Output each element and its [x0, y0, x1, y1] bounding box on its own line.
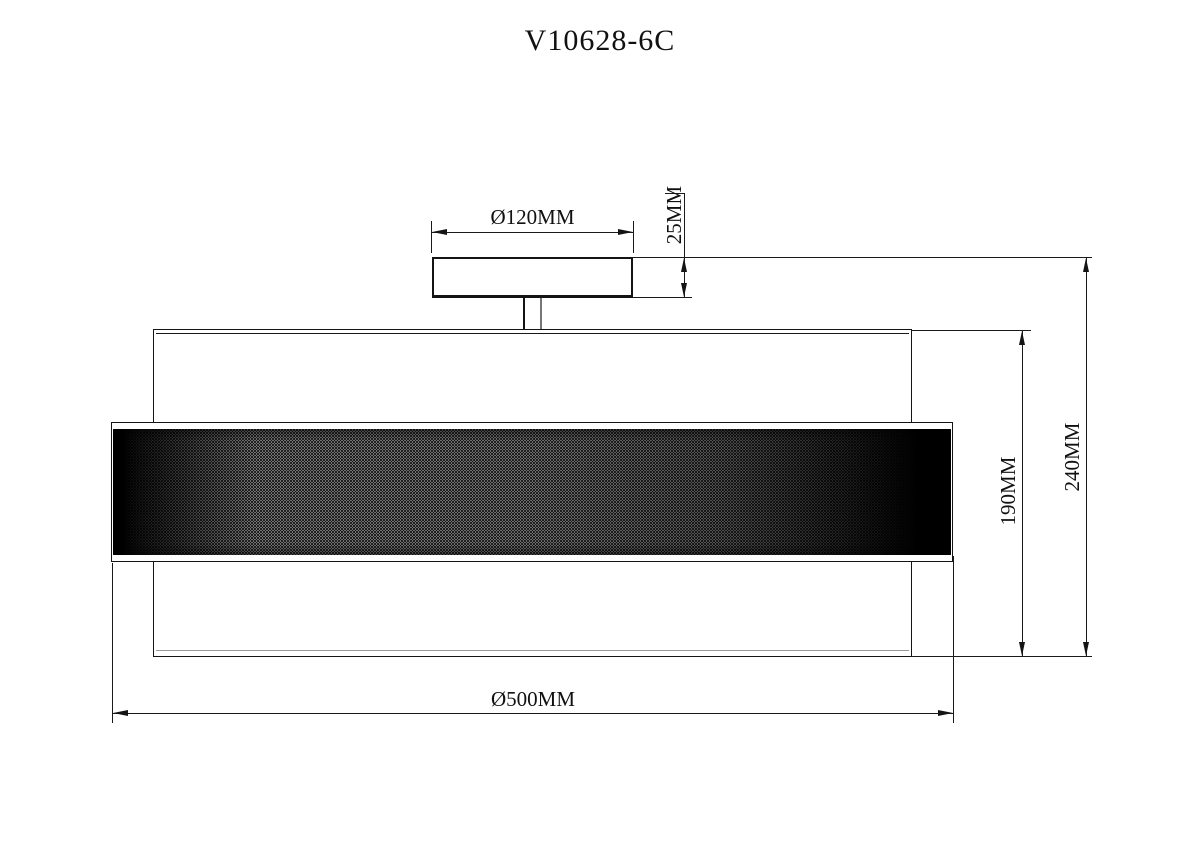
- arrow-up-icon: [1019, 331, 1025, 345]
- mesh-texture: [113, 429, 951, 555]
- dim-label-canopy-height: 25MM: [662, 179, 684, 251]
- ext-line-canopy-right: [633, 221, 634, 253]
- ext-line-bottom: [911, 656, 1092, 657]
- dim-label-shade-diameter: Ø500MM: [113, 687, 953, 712]
- arrow-down-icon: [1083, 642, 1089, 656]
- dim-line-total-height: [1086, 258, 1087, 656]
- technical-drawing: V10628-6C Ø120MM 25MM 190MM 240MM Ø500MM: [0, 0, 1200, 848]
- ext-line-shade-right: [953, 556, 954, 723]
- dim-line-shade-diameter: [113, 713, 953, 714]
- ceiling-canopy: [432, 257, 633, 298]
- ext-line-total-height-top: [633, 257, 1092, 258]
- ext-line-canopy-bottom: [633, 297, 692, 298]
- dim-label-total-height: 240MM: [1060, 417, 1082, 497]
- arrow-up-icon: [681, 258, 687, 272]
- dim-label-canopy-diameter: Ø120MM: [432, 205, 633, 230]
- arrow-down-icon: [681, 283, 687, 297]
- dim-line-canopy-diameter: [432, 232, 633, 233]
- ext-line-shade-top: [911, 330, 1031, 331]
- mesh-band: [111, 422, 953, 562]
- drum-shade-top-edge-line: [156, 333, 909, 334]
- drawing-title: V10628-6C: [0, 24, 1200, 58]
- stem: [523, 298, 542, 330]
- arrow-up-icon: [1083, 258, 1089, 272]
- dim-label-shade-height: 190MM: [996, 451, 1018, 531]
- arrow-down-icon: [1019, 642, 1025, 656]
- dim-line-shade-height: [1022, 331, 1023, 656]
- drum-shade-bottom-edge-line: [156, 650, 909, 651]
